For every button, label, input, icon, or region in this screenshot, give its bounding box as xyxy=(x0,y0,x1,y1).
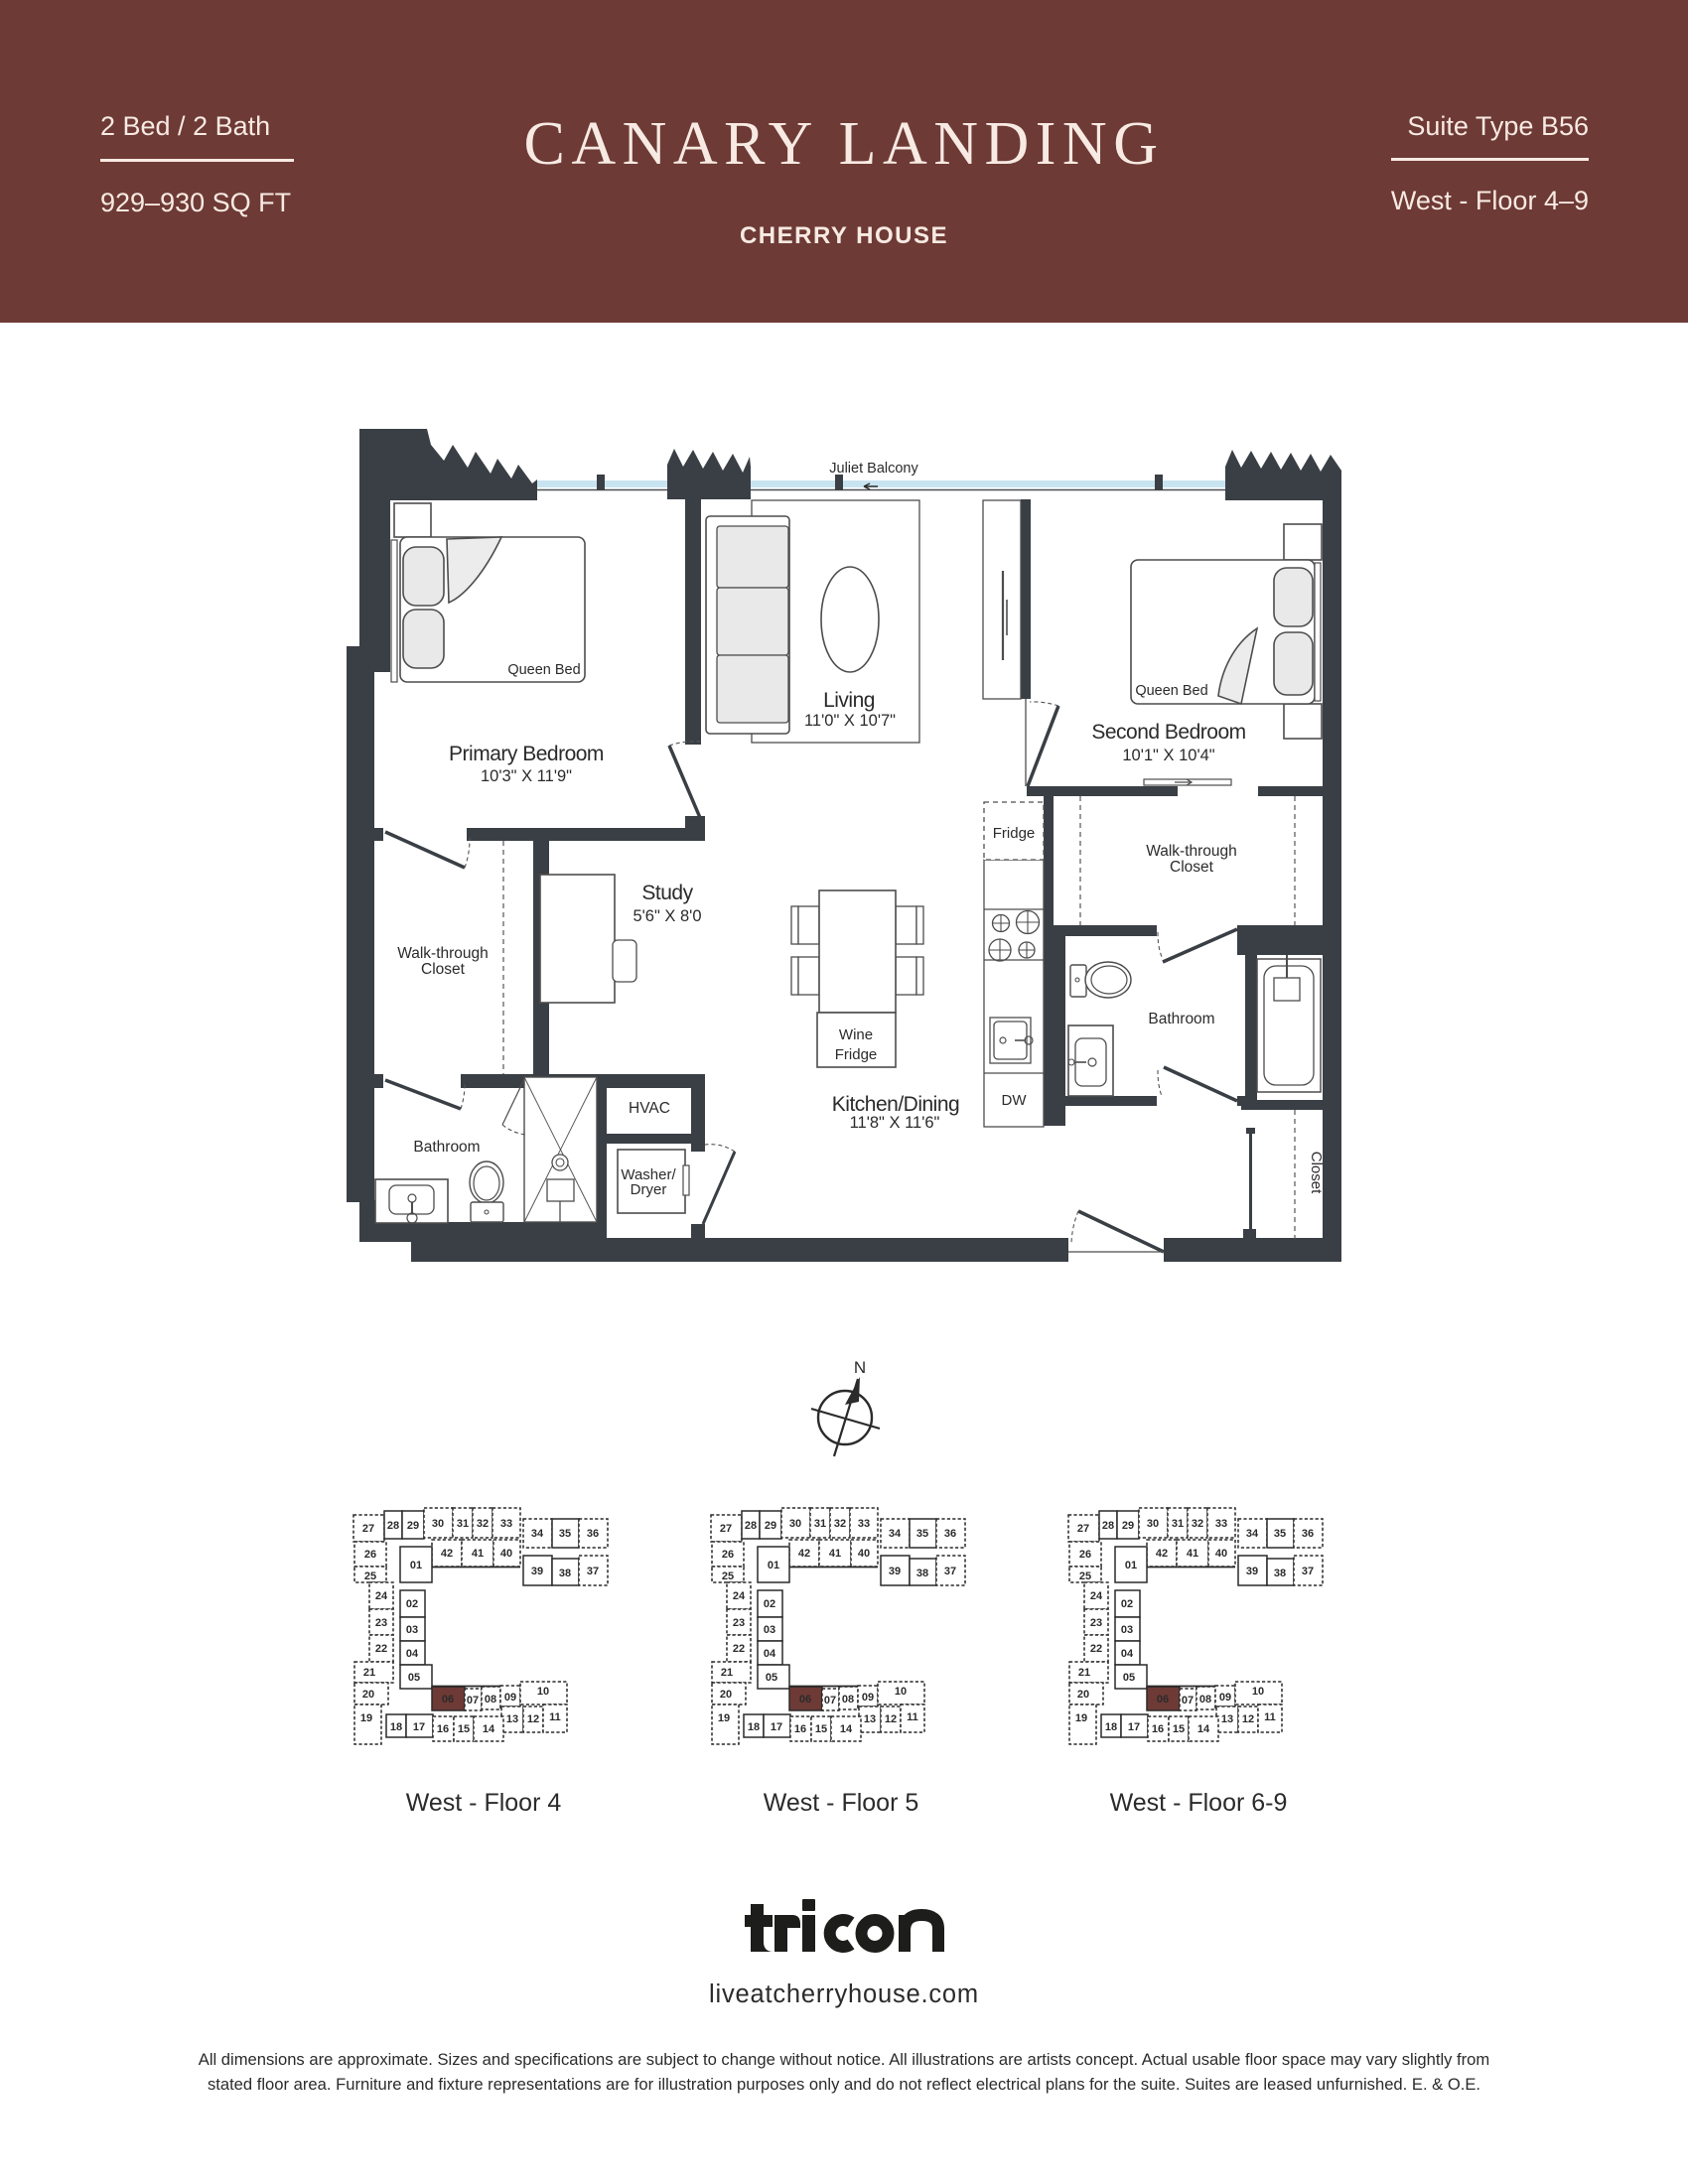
svg-text:DW: DW xyxy=(1002,1092,1028,1109)
svg-text:11'0" X 10'7": 11'0" X 10'7" xyxy=(804,712,896,730)
svg-text:West - Floor 4: West - Floor 4 xyxy=(406,1789,562,1817)
svg-text:Walk-through: Walk-through xyxy=(1146,843,1237,860)
svg-text:Queen Bed: Queen Bed xyxy=(507,662,580,678)
svg-text:All dimensions are approximate: All dimensions are approximate. Sizes an… xyxy=(199,2050,1489,2069)
svg-text:Closet: Closet xyxy=(1170,859,1214,876)
svg-text:HVAC: HVAC xyxy=(629,1100,670,1117)
svg-text:Juliet Balcony: Juliet Balcony xyxy=(829,461,918,477)
svg-text:Fridge: Fridge xyxy=(993,825,1036,842)
svg-text:Fridge: Fridge xyxy=(835,1046,878,1063)
svg-text:Kitchen/Dining: Kitchen/Dining xyxy=(832,1093,959,1116)
svg-text:Closet: Closet xyxy=(1308,1152,1325,1194)
svg-text:5'6" X 8'0: 5'6" X 8'0 xyxy=(633,907,701,925)
svg-text:Second Bedroom: Second Bedroom xyxy=(1091,721,1245,744)
svg-text:10'1" X 10'4": 10'1" X 10'4" xyxy=(1122,747,1214,764)
svg-text:10'3" X 11'9": 10'3" X 11'9" xyxy=(481,767,572,785)
svg-text:Primary Bedroom: Primary Bedroom xyxy=(449,743,604,765)
svg-text:Bathroom: Bathroom xyxy=(1148,1011,1214,1027)
svg-text:Study: Study xyxy=(641,882,693,904)
svg-text:N: N xyxy=(854,1358,866,1377)
svg-text:West - Floor 6-9: West - Floor 6-9 xyxy=(1110,1789,1288,1817)
svg-text:stated floor area. Furniture a: stated floor area. Furniture and fixture… xyxy=(208,2075,1480,2094)
svg-text:Closet: Closet xyxy=(421,961,466,978)
svg-text:West - Floor 5: West - Floor 5 xyxy=(764,1789,919,1817)
svg-text:Bathroom: Bathroom xyxy=(413,1139,480,1156)
svg-text:liveatcherryhouse.com: liveatcherryhouse.com xyxy=(709,1980,979,2008)
svg-text:Queen Bed: Queen Bed xyxy=(1135,683,1207,699)
svg-text:Dryer: Dryer xyxy=(631,1181,667,1198)
svg-text:Living: Living xyxy=(823,689,875,712)
svg-text:11'8" X 11'6": 11'8" X 11'6" xyxy=(850,1114,940,1132)
svg-text:Wine: Wine xyxy=(839,1026,873,1043)
svg-text:Walk-through: Walk-through xyxy=(397,945,489,962)
